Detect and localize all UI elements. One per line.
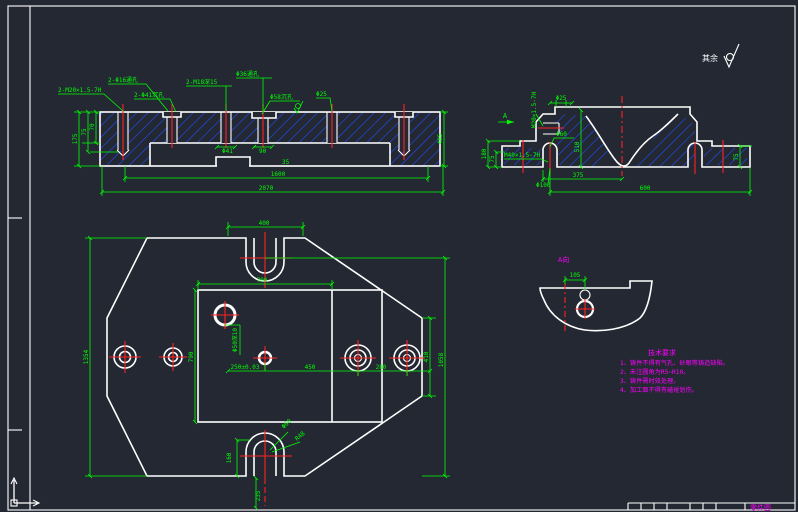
dim-485: 485: [437, 133, 444, 144]
surface-roughness-note: 其余: [702, 44, 739, 67]
tech-requirement-item: 1、铸件不得有气孔、砂眼等铸造缺陷。: [620, 359, 729, 367]
tech-requirement-item: 2、未注圆角为R5~R10。: [620, 368, 689, 376]
dim-dia41: Φ41: [222, 148, 233, 155]
cbore-notch-center: [252, 112, 276, 118]
dim-1600: 1600: [271, 171, 286, 178]
dim-600: 600: [640, 185, 651, 192]
callout-dia-25: Φ25: [316, 91, 327, 98]
dim-160: 160: [226, 452, 233, 463]
dim-450: 450: [305, 364, 316, 371]
dim-90: 90: [259, 148, 267, 155]
surface-note-text: 其余: [702, 53, 718, 63]
callout-thru-36: Φ36通孔: [236, 70, 259, 78]
a-view-profile: [540, 281, 652, 331]
dim-235: 235: [255, 490, 262, 501]
callout-tap-left: 2-M20×1.5-7H: [58, 87, 102, 94]
a-view-hole-small: [580, 290, 590, 300]
callout-dia60: Φ60: [556, 131, 567, 138]
side-section-view: Φ25 M20×1.5-7H A 180 75 M40×1.5-7H Φ60 5…: [481, 92, 752, 196]
dim-35: 35: [282, 159, 290, 166]
callout-thru-16: 2-Φ16通孔: [108, 76, 138, 84]
callout-hole-note: Φ50深10: [231, 328, 239, 352]
dim-75-right: 75: [733, 153, 740, 161]
roughness-icon: [724, 44, 739, 67]
ucs-icon: [11, 478, 39, 506]
title-block: 零件图: [628, 503, 795, 512]
a-direction-view: A向 105: [540, 255, 652, 332]
dim-510: 510: [574, 141, 581, 152]
dim-dia25: Φ25: [556, 95, 567, 102]
a-view-label: A向: [558, 255, 569, 264]
plan-inner-rect: [198, 290, 382, 422]
dim-2070: 2070: [259, 185, 274, 192]
cad-drawing: 其余: [0, 0, 798, 512]
view-arrow-label: A: [503, 112, 508, 120]
hatch-right-flange: [704, 148, 747, 165]
plan-holes: [114, 305, 420, 371]
dim-70: 70: [89, 123, 96, 131]
dim-1354: 1354: [83, 349, 90, 364]
callout-dia100: Φ100: [536, 182, 551, 189]
callout-cbore-41: 2-Φ41沉孔: [134, 91, 164, 99]
hatch-left-boss: [557, 114, 612, 166]
machining-check-icon: [294, 101, 303, 113]
dim-105: 105: [570, 272, 581, 279]
cad-canvas[interactable]: 其余: [0, 0, 798, 512]
dim-700: 700: [257, 277, 268, 284]
tech-requirement-item: 4、加工面不得有磕碰划伤。: [620, 386, 698, 394]
tech-requirements-title: 技术要求: [648, 348, 676, 357]
title-block-label: 零件图: [750, 503, 771, 512]
callout-cbore-58: Φ58沉孔: [270, 93, 293, 101]
tech-requirements: 技术要求 1、铸件不得有气孔、砂眼等铸造缺陷。 2、未注圆角为R5~R10。 3…: [620, 348, 729, 394]
dim-400: 400: [259, 220, 270, 227]
hatch-right-wall: [390, 143, 440, 166]
dim-175: 175: [72, 133, 79, 144]
dim-410: 410: [423, 351, 430, 362]
callout-tap-vert: M20×1.5-7H: [531, 92, 538, 129]
dim-250: 250±0.03: [231, 364, 260, 371]
dim-180: 180: [481, 148, 488, 159]
front-section-view: 2-M20×1.5-7H 2-Φ16通孔 2-Φ41沉孔 2-M18深15 Φ3…: [58, 70, 448, 196]
callout-tap-m18: 2-M18深15: [186, 78, 218, 86]
callout-tap-m40: M40×1.5-7H: [504, 152, 541, 159]
dim-75-left: 75: [489, 155, 496, 163]
hatch-right-boss: [634, 114, 695, 166]
plan-view: 400 700 1354 790 410 1058 250±0.03 450 2…: [83, 220, 450, 508]
dim-75: 75: [81, 128, 88, 136]
dim-790: 790: [188, 351, 195, 362]
dim-1058: 1058: [438, 352, 445, 367]
tech-requirement-item: 3、铸件需时效处理。: [620, 377, 679, 385]
dim-slot-dia60: Φ60: [280, 418, 293, 431]
dim-280: 280: [376, 364, 387, 371]
dim-375: 375: [573, 172, 584, 179]
dim-r48: R48: [294, 430, 307, 443]
